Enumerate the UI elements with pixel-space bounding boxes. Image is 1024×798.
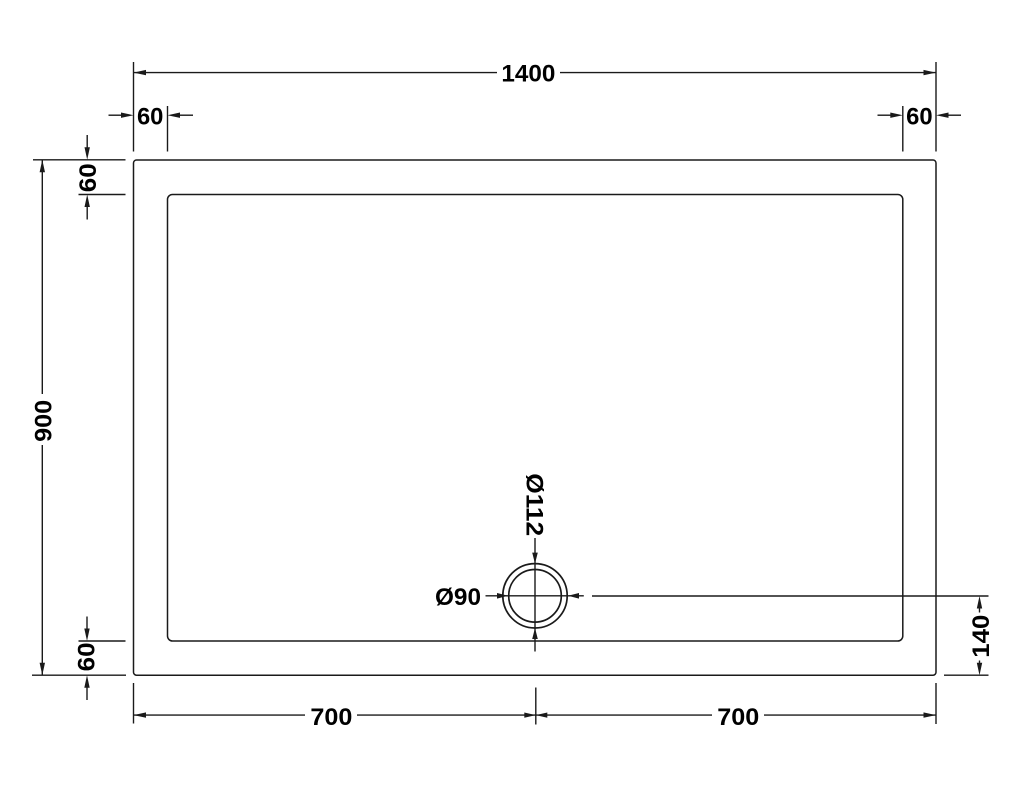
svg-text:700: 700 (310, 704, 352, 731)
svg-text:60: 60 (906, 104, 933, 131)
svg-text:Ø90: Ø90 (435, 584, 481, 611)
svg-text:Ø112: Ø112 (521, 473, 548, 536)
svg-text:60: 60 (137, 104, 164, 131)
svg-text:1400: 1400 (501, 60, 555, 87)
svg-text:140: 140 (968, 615, 995, 658)
svg-text:60: 60 (75, 163, 102, 192)
svg-text:700: 700 (717, 704, 759, 731)
svg-text:900: 900 (30, 400, 57, 442)
svg-text:60: 60 (74, 642, 101, 671)
